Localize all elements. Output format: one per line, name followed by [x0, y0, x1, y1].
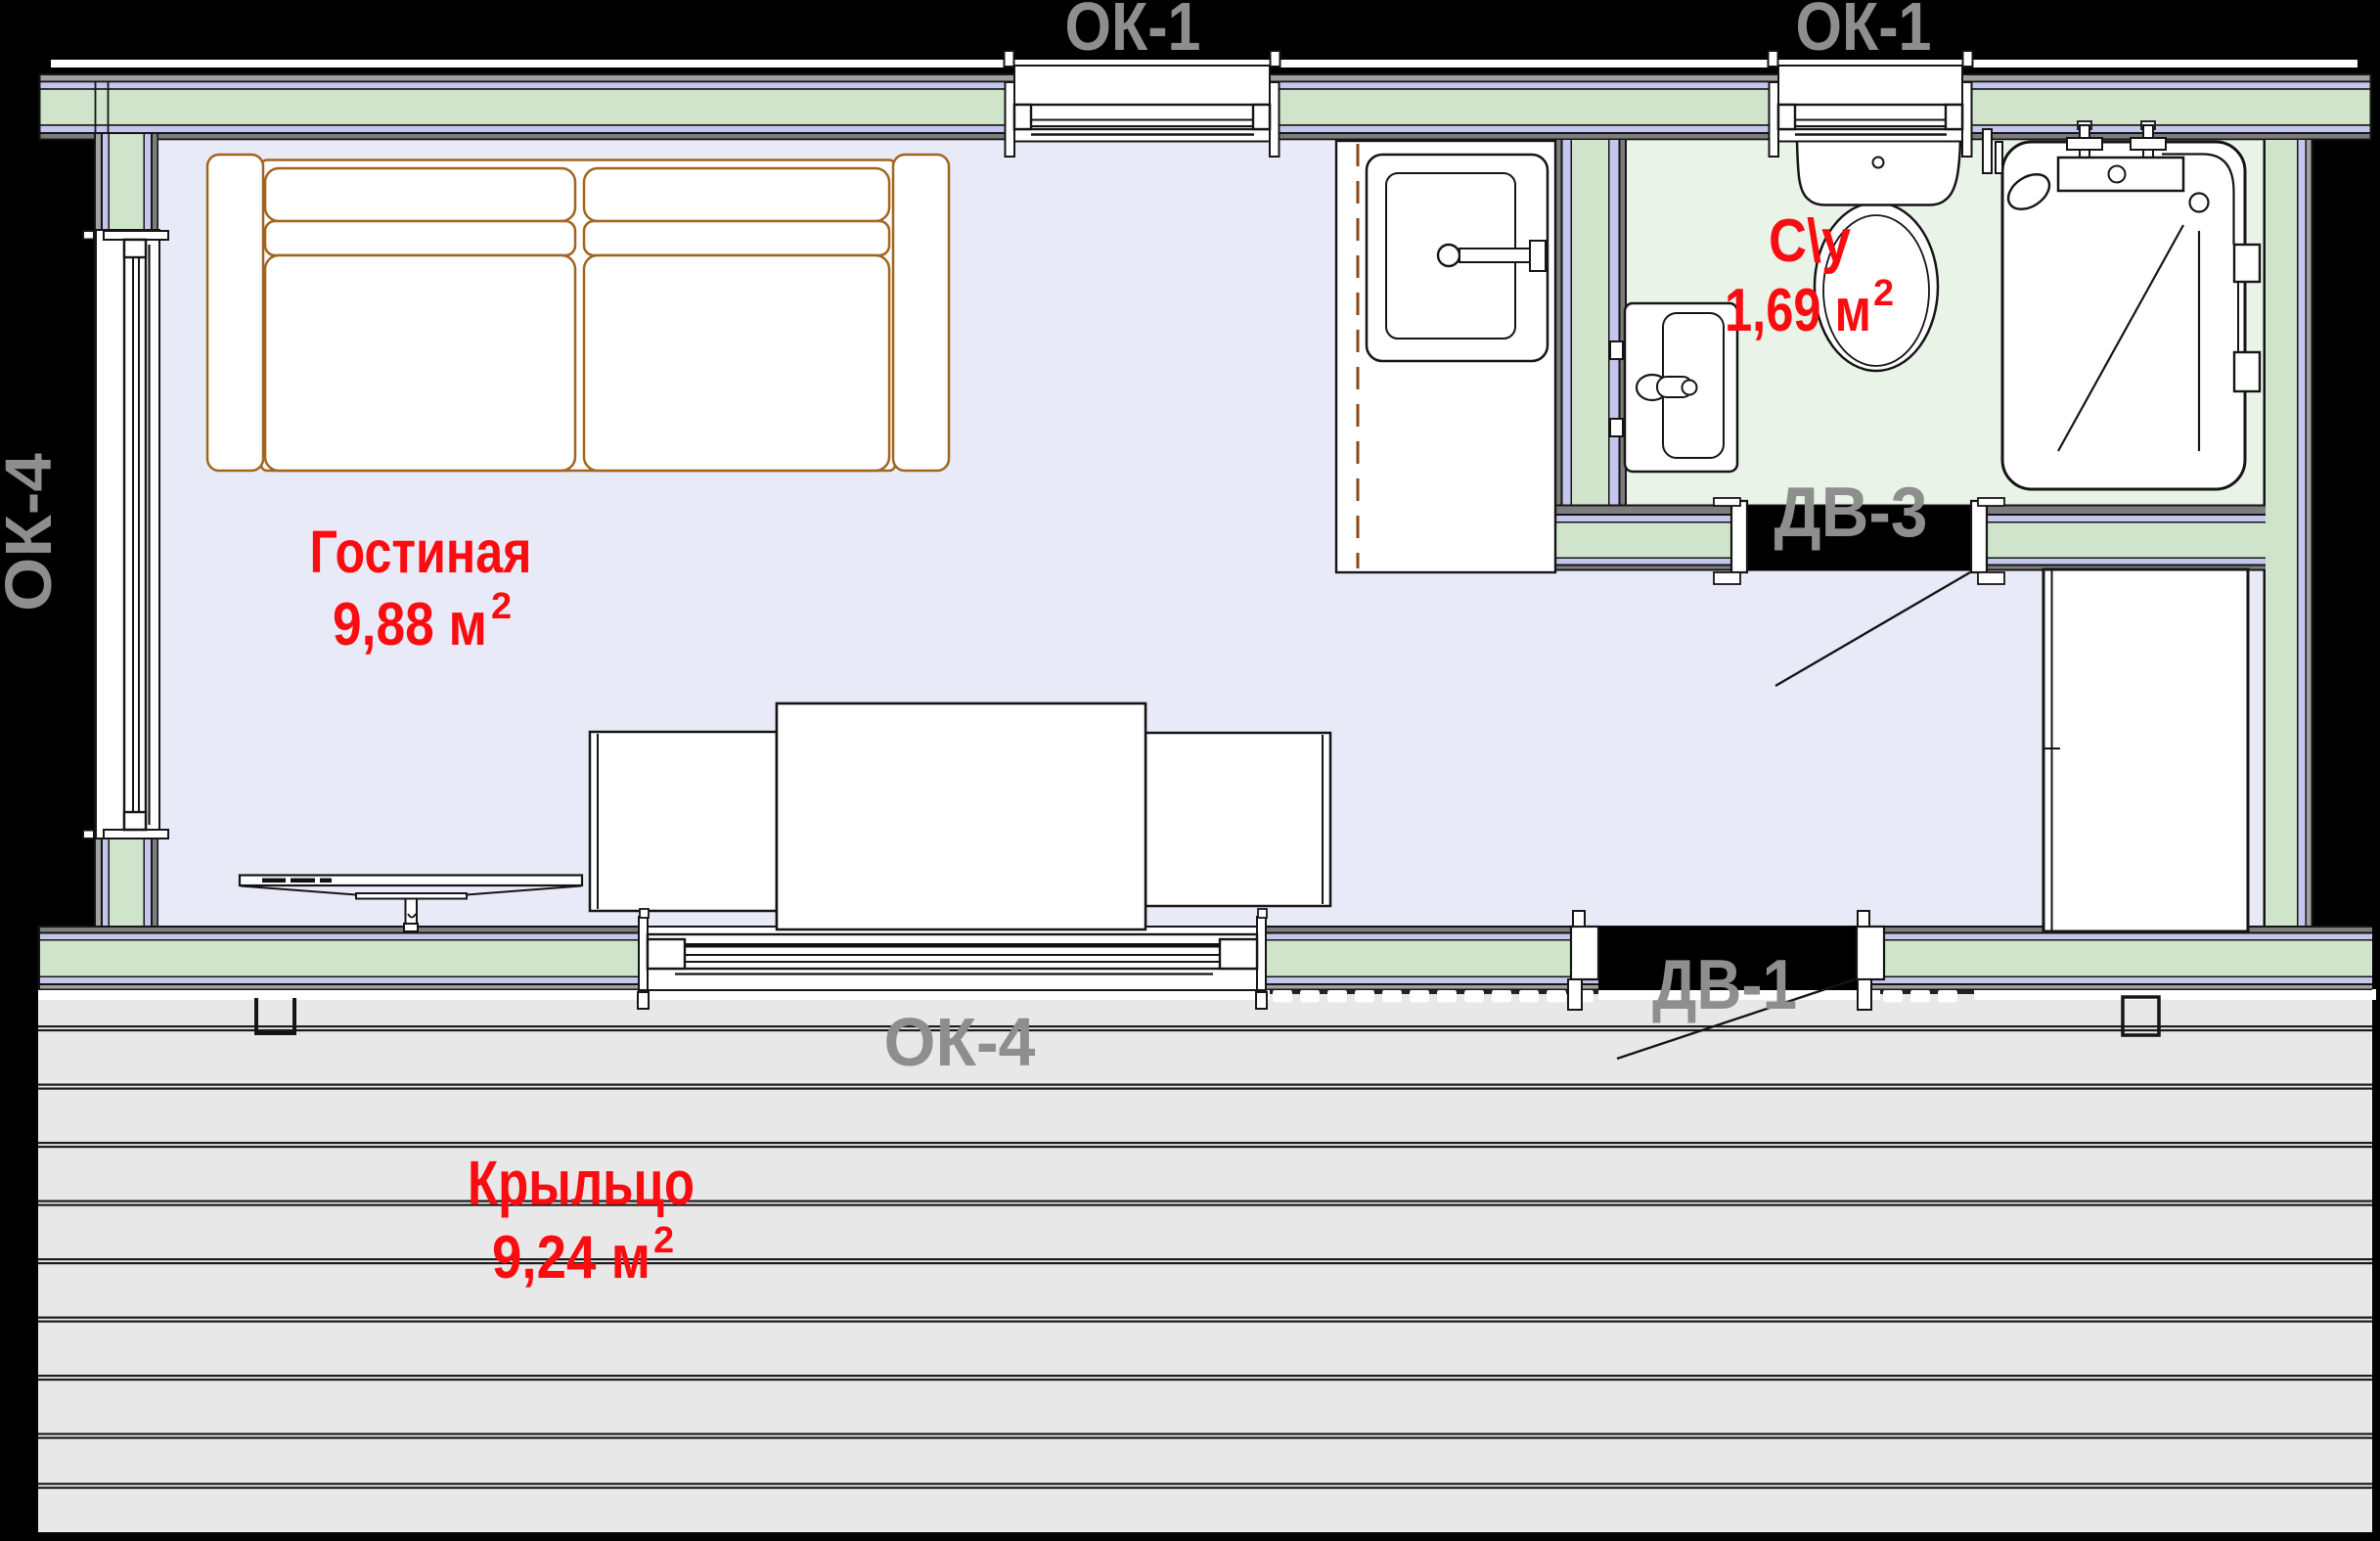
svg-text:ДВ-1: ДВ-1 [1652, 946, 1797, 1024]
svg-text:Гостиная: Гостиная [310, 519, 532, 585]
svg-text:ОК-1: ОК-1 [1065, 0, 1201, 65]
svg-text:ОК-4: ОК-4 [884, 1004, 1036, 1080]
svg-text:ДВ-3: ДВ-3 [1774, 474, 1928, 552]
svg-text:9,24 м: 9,24 м [492, 1224, 651, 1292]
svg-text:С\у: С\у [1769, 207, 1851, 275]
svg-text:2: 2 [653, 1220, 674, 1261]
svg-text:ОК-4: ОК-4 [0, 453, 66, 612]
svg-text:2: 2 [1873, 273, 1894, 314]
svg-text:1,69 м: 1,69 м [1725, 277, 1871, 344]
svg-text:ОК-1: ОК-1 [1796, 0, 1932, 65]
svg-text:2: 2 [491, 586, 512, 627]
svg-text:9,88 м: 9,88 м [333, 591, 487, 658]
svg-text:Крыльцо: Крыльцо [468, 1148, 695, 1218]
